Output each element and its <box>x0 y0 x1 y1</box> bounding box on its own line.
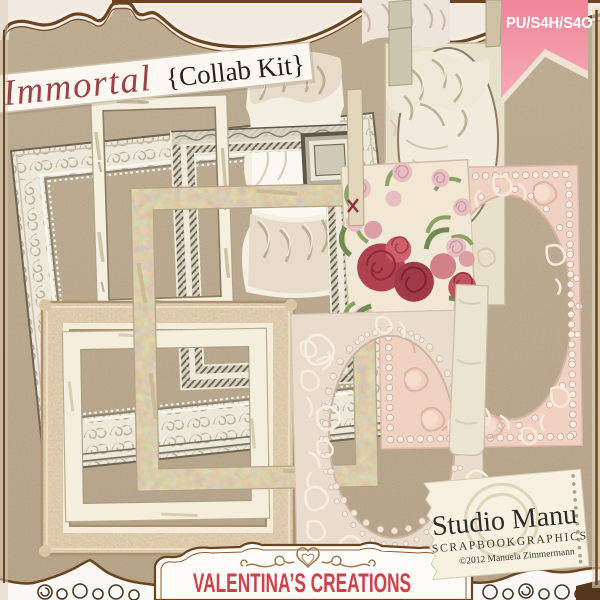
svg-text:PU/S4H/S4O: PU/S4H/S4O <box>506 14 593 32</box>
svg-text:VALENTINA’S CREATIONS: VALENTINA’S CREATIONS <box>193 567 411 598</box>
